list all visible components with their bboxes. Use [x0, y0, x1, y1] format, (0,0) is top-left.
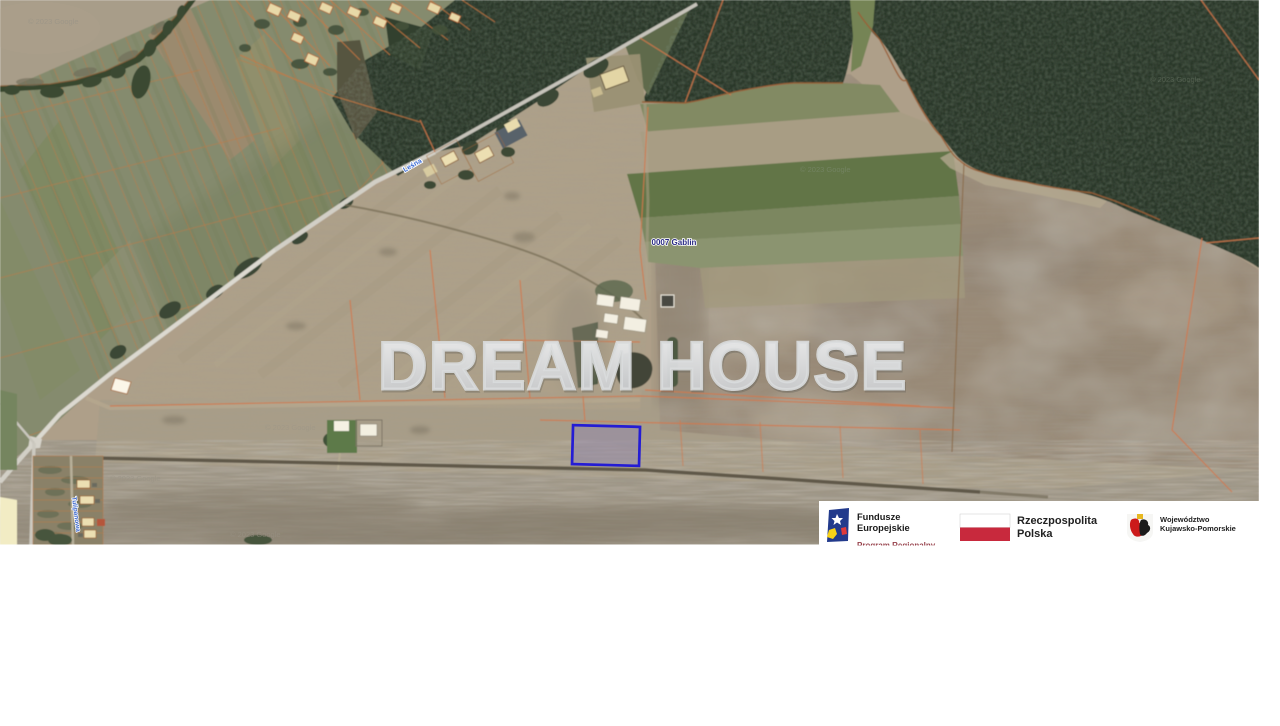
svg-text:Europejskie: Europejskie: [857, 523, 910, 533]
svg-text:© 2023 Google: © 2023 Google: [1150, 75, 1201, 84]
svg-text:Województwo: Województwo: [1160, 515, 1210, 524]
svg-text:© 2023 Google: © 2023 Google: [110, 474, 161, 483]
svg-text:Fundusze: Fundusze: [857, 512, 900, 522]
svg-text:DREAM HOUSE: DREAM HOUSE: [378, 328, 908, 404]
svg-text:© 2023 Google: © 2023 Google: [265, 423, 316, 432]
svg-text:© 2023 Google: © 2023 Google: [28, 17, 79, 26]
svg-text:Rzeczpospolita: Rzeczpospolita: [1017, 515, 1098, 527]
svg-text:© 2023 Google: © 2023 Google: [800, 165, 851, 174]
svg-text:Polska: Polska: [1017, 528, 1053, 540]
svg-text:© 2023 Google: © 2023 Google: [230, 530, 281, 539]
svg-text:Program Regionalny: Program Regionalny: [857, 541, 936, 550]
svg-text:Kujawsko-Pomorskie: Kujawsko-Pomorskie: [1160, 524, 1236, 533]
svg-text:0007 Gablin: 0007 Gablin: [652, 238, 697, 247]
